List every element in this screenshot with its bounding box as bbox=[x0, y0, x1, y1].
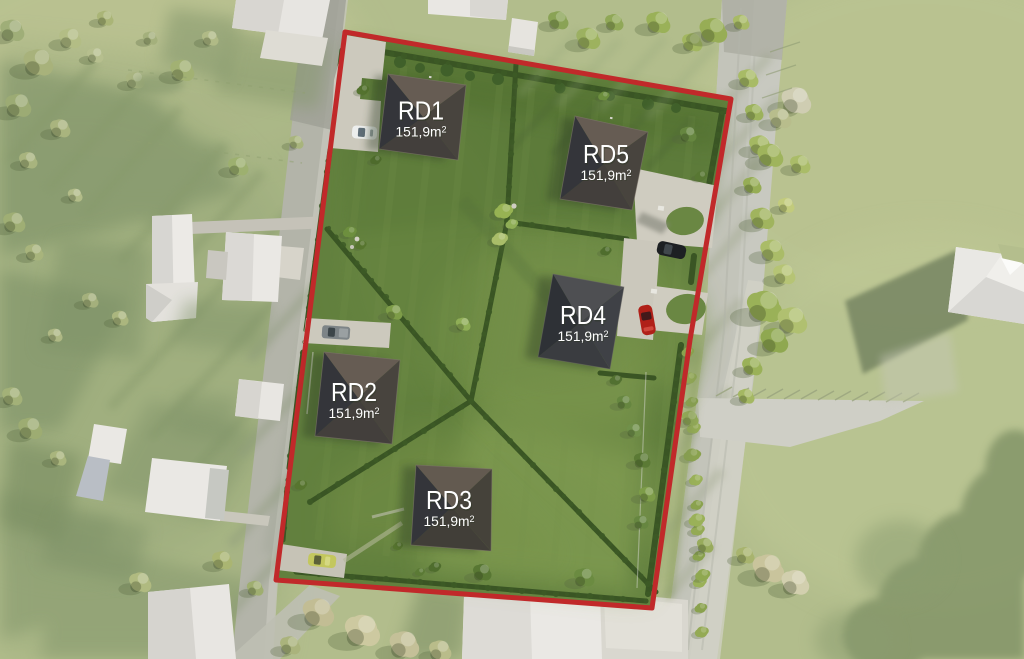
svg-text:151,9m2: 151,9m2 bbox=[395, 125, 446, 140]
svg-text:RD5: RD5 bbox=[583, 141, 629, 169]
svg-text:151,9m2: 151,9m2 bbox=[328, 406, 379, 421]
svg-text:RD2: RD2 bbox=[331, 379, 377, 407]
svg-text:RD3: RD3 bbox=[426, 487, 472, 515]
svg-text:RD4: RD4 bbox=[560, 302, 606, 330]
svg-text:RD1: RD1 bbox=[398, 98, 444, 126]
svg-text:151,9m2: 151,9m2 bbox=[580, 168, 631, 183]
svg-text:151,9m2: 151,9m2 bbox=[557, 329, 608, 344]
svg-text:151,9m2: 151,9m2 bbox=[423, 514, 474, 529]
